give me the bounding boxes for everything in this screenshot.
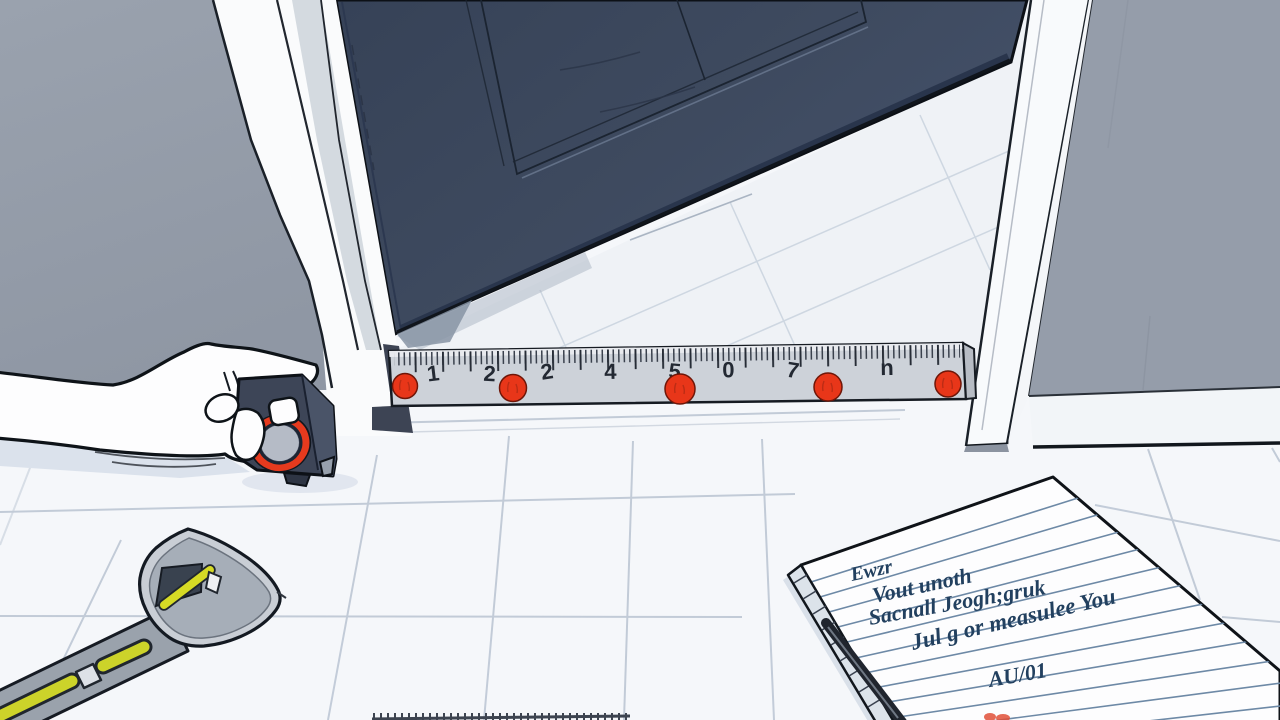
svg-text:2: 2 [483,361,497,387]
svg-text:0: 0 [722,357,735,382]
svg-text:4: 4 [604,359,617,384]
svg-text:n: n [880,355,894,380]
